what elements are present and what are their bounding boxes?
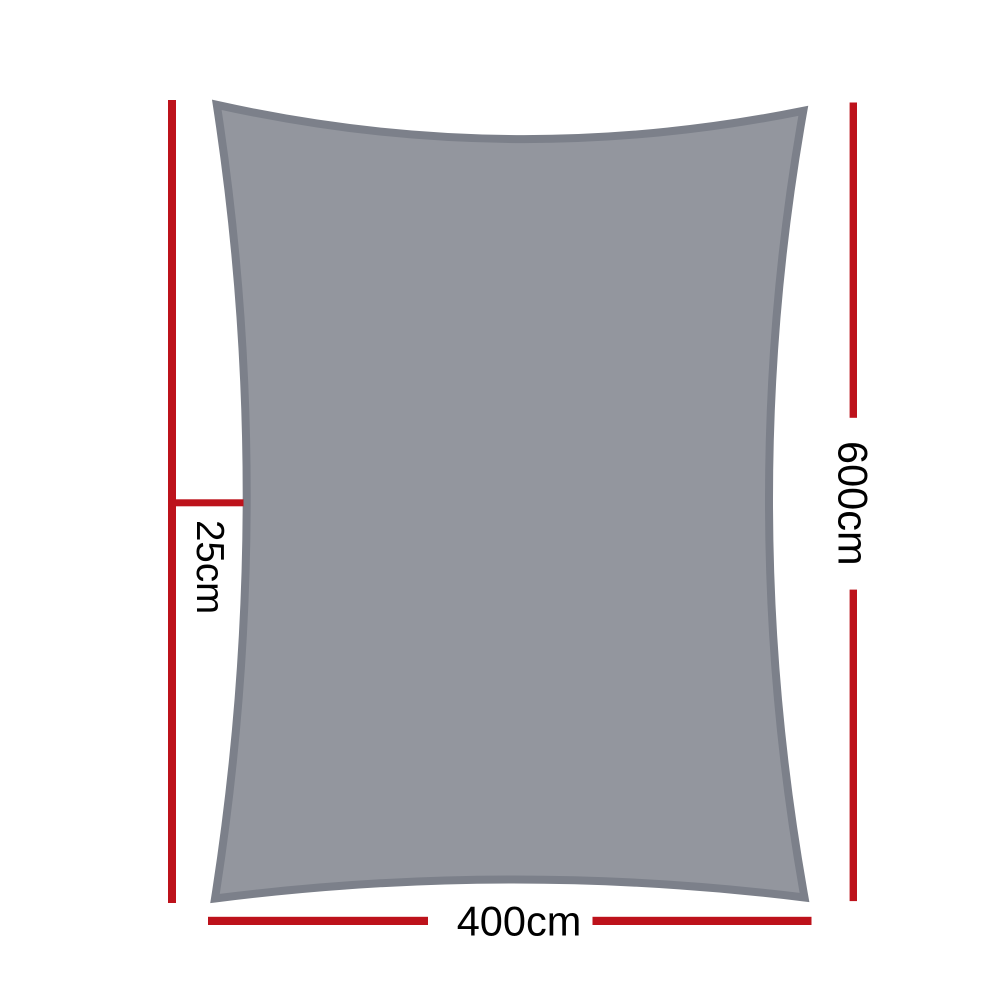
- svg-text:25cm: 25cm: [188, 520, 231, 614]
- svg-text:400cm: 400cm: [457, 898, 582, 945]
- svg-text:600cm: 600cm: [830, 441, 877, 566]
